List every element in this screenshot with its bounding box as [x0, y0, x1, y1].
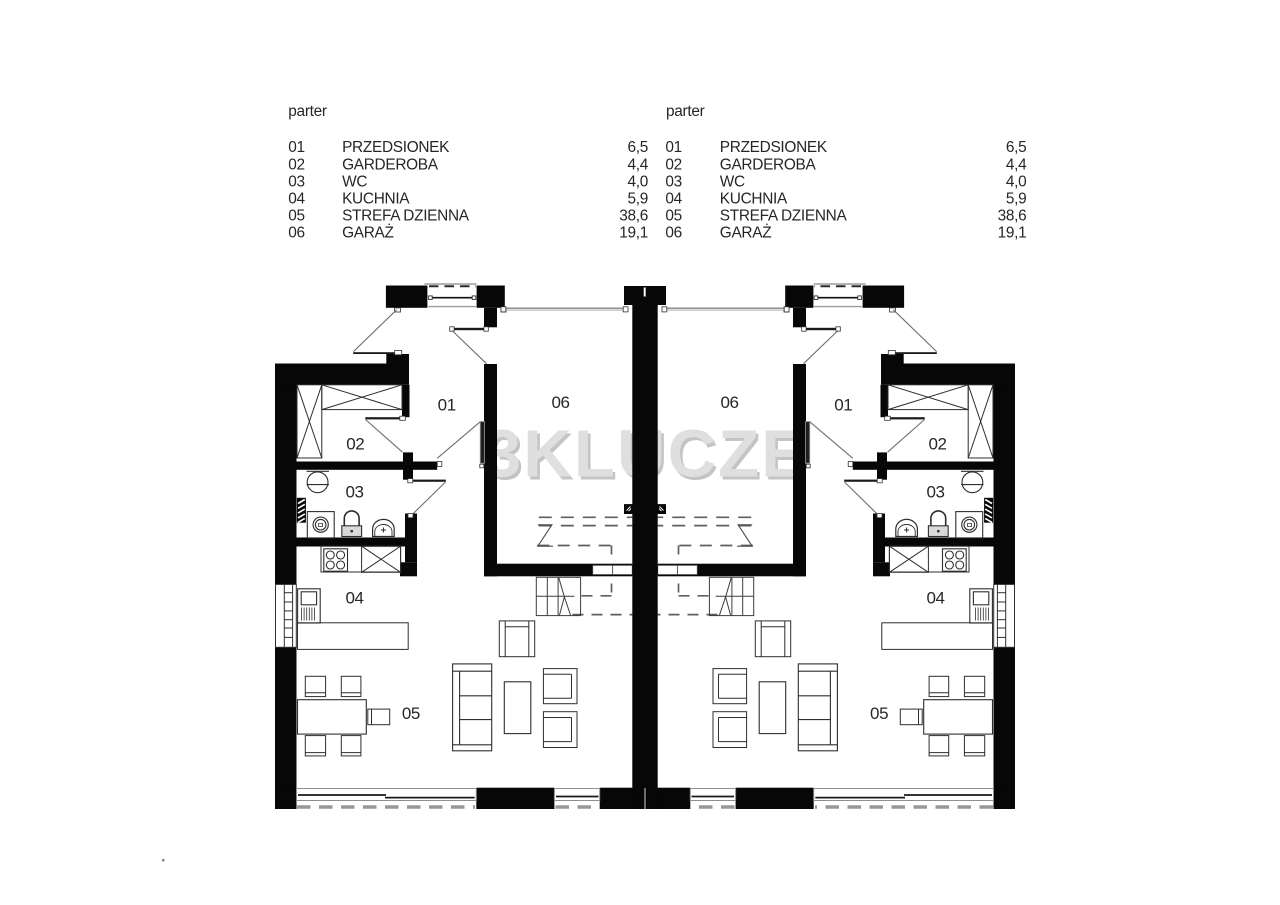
svg-text:WC: WC	[342, 173, 367, 190]
svg-text:04: 04	[665, 190, 682, 207]
svg-text:06: 06	[288, 225, 305, 242]
svg-text:05: 05	[402, 704, 420, 723]
svg-text:STREFA DZIENNA: STREFA DZIENNA	[342, 208, 470, 225]
svg-text:GARAŻ: GARAŻ	[720, 224, 772, 242]
svg-text:19,1: 19,1	[619, 225, 648, 242]
svg-text:parter: parter	[288, 103, 327, 120]
svg-text:4,0: 4,0	[628, 173, 649, 190]
svg-text:05: 05	[870, 704, 888, 723]
svg-text:02: 02	[288, 156, 305, 173]
svg-text:01: 01	[834, 396, 852, 415]
svg-text:01: 01	[438, 396, 456, 415]
svg-text:6,5: 6,5	[1006, 139, 1027, 156]
svg-text:5,9: 5,9	[628, 190, 649, 207]
svg-text:04: 04	[926, 589, 944, 608]
svg-text:01: 01	[665, 139, 682, 156]
svg-text:GARAŻ: GARAŻ	[342, 224, 394, 242]
svg-text:03: 03	[926, 482, 944, 501]
svg-text:KUCHNIA: KUCHNIA	[720, 190, 788, 207]
svg-text:GARDEROBA: GARDEROBA	[720, 156, 817, 173]
svg-text:parter: parter	[666, 103, 705, 120]
svg-text:06: 06	[665, 225, 682, 242]
svg-text:STREFA DZIENNA: STREFA DZIENNA	[720, 208, 848, 225]
svg-text:05: 05	[288, 208, 305, 225]
svg-text:02: 02	[928, 435, 946, 454]
svg-text:PRZEDSIONEK: PRZEDSIONEK	[720, 139, 828, 156]
svg-text:19,1: 19,1	[998, 225, 1027, 242]
svg-text:04: 04	[288, 190, 305, 207]
svg-text:GARDEROBA: GARDEROBA	[342, 156, 439, 173]
svg-text:06: 06	[720, 393, 738, 412]
svg-text:38,6: 38,6	[619, 208, 648, 225]
svg-text:PRZEDSIONEK: PRZEDSIONEK	[342, 139, 450, 156]
svg-text:5,9: 5,9	[1006, 190, 1027, 207]
svg-text:02: 02	[665, 156, 682, 173]
svg-text:WC: WC	[720, 173, 745, 190]
svg-text:4,4: 4,4	[1006, 156, 1027, 173]
svg-text:4,0: 4,0	[1006, 173, 1027, 190]
svg-text:6,5: 6,5	[628, 139, 649, 156]
svg-text:KUCHNIA: KUCHNIA	[342, 190, 410, 207]
svg-text:38,6: 38,6	[998, 208, 1027, 225]
svg-text:02: 02	[346, 435, 364, 454]
svg-text:03: 03	[288, 173, 305, 190]
svg-text:03: 03	[665, 173, 682, 190]
svg-text:01: 01	[288, 139, 305, 156]
svg-text:04: 04	[345, 589, 363, 608]
svg-text:4,4: 4,4	[628, 156, 649, 173]
svg-text:06: 06	[551, 393, 569, 412]
svg-text:03: 03	[345, 482, 363, 501]
svg-text:05: 05	[665, 208, 682, 225]
